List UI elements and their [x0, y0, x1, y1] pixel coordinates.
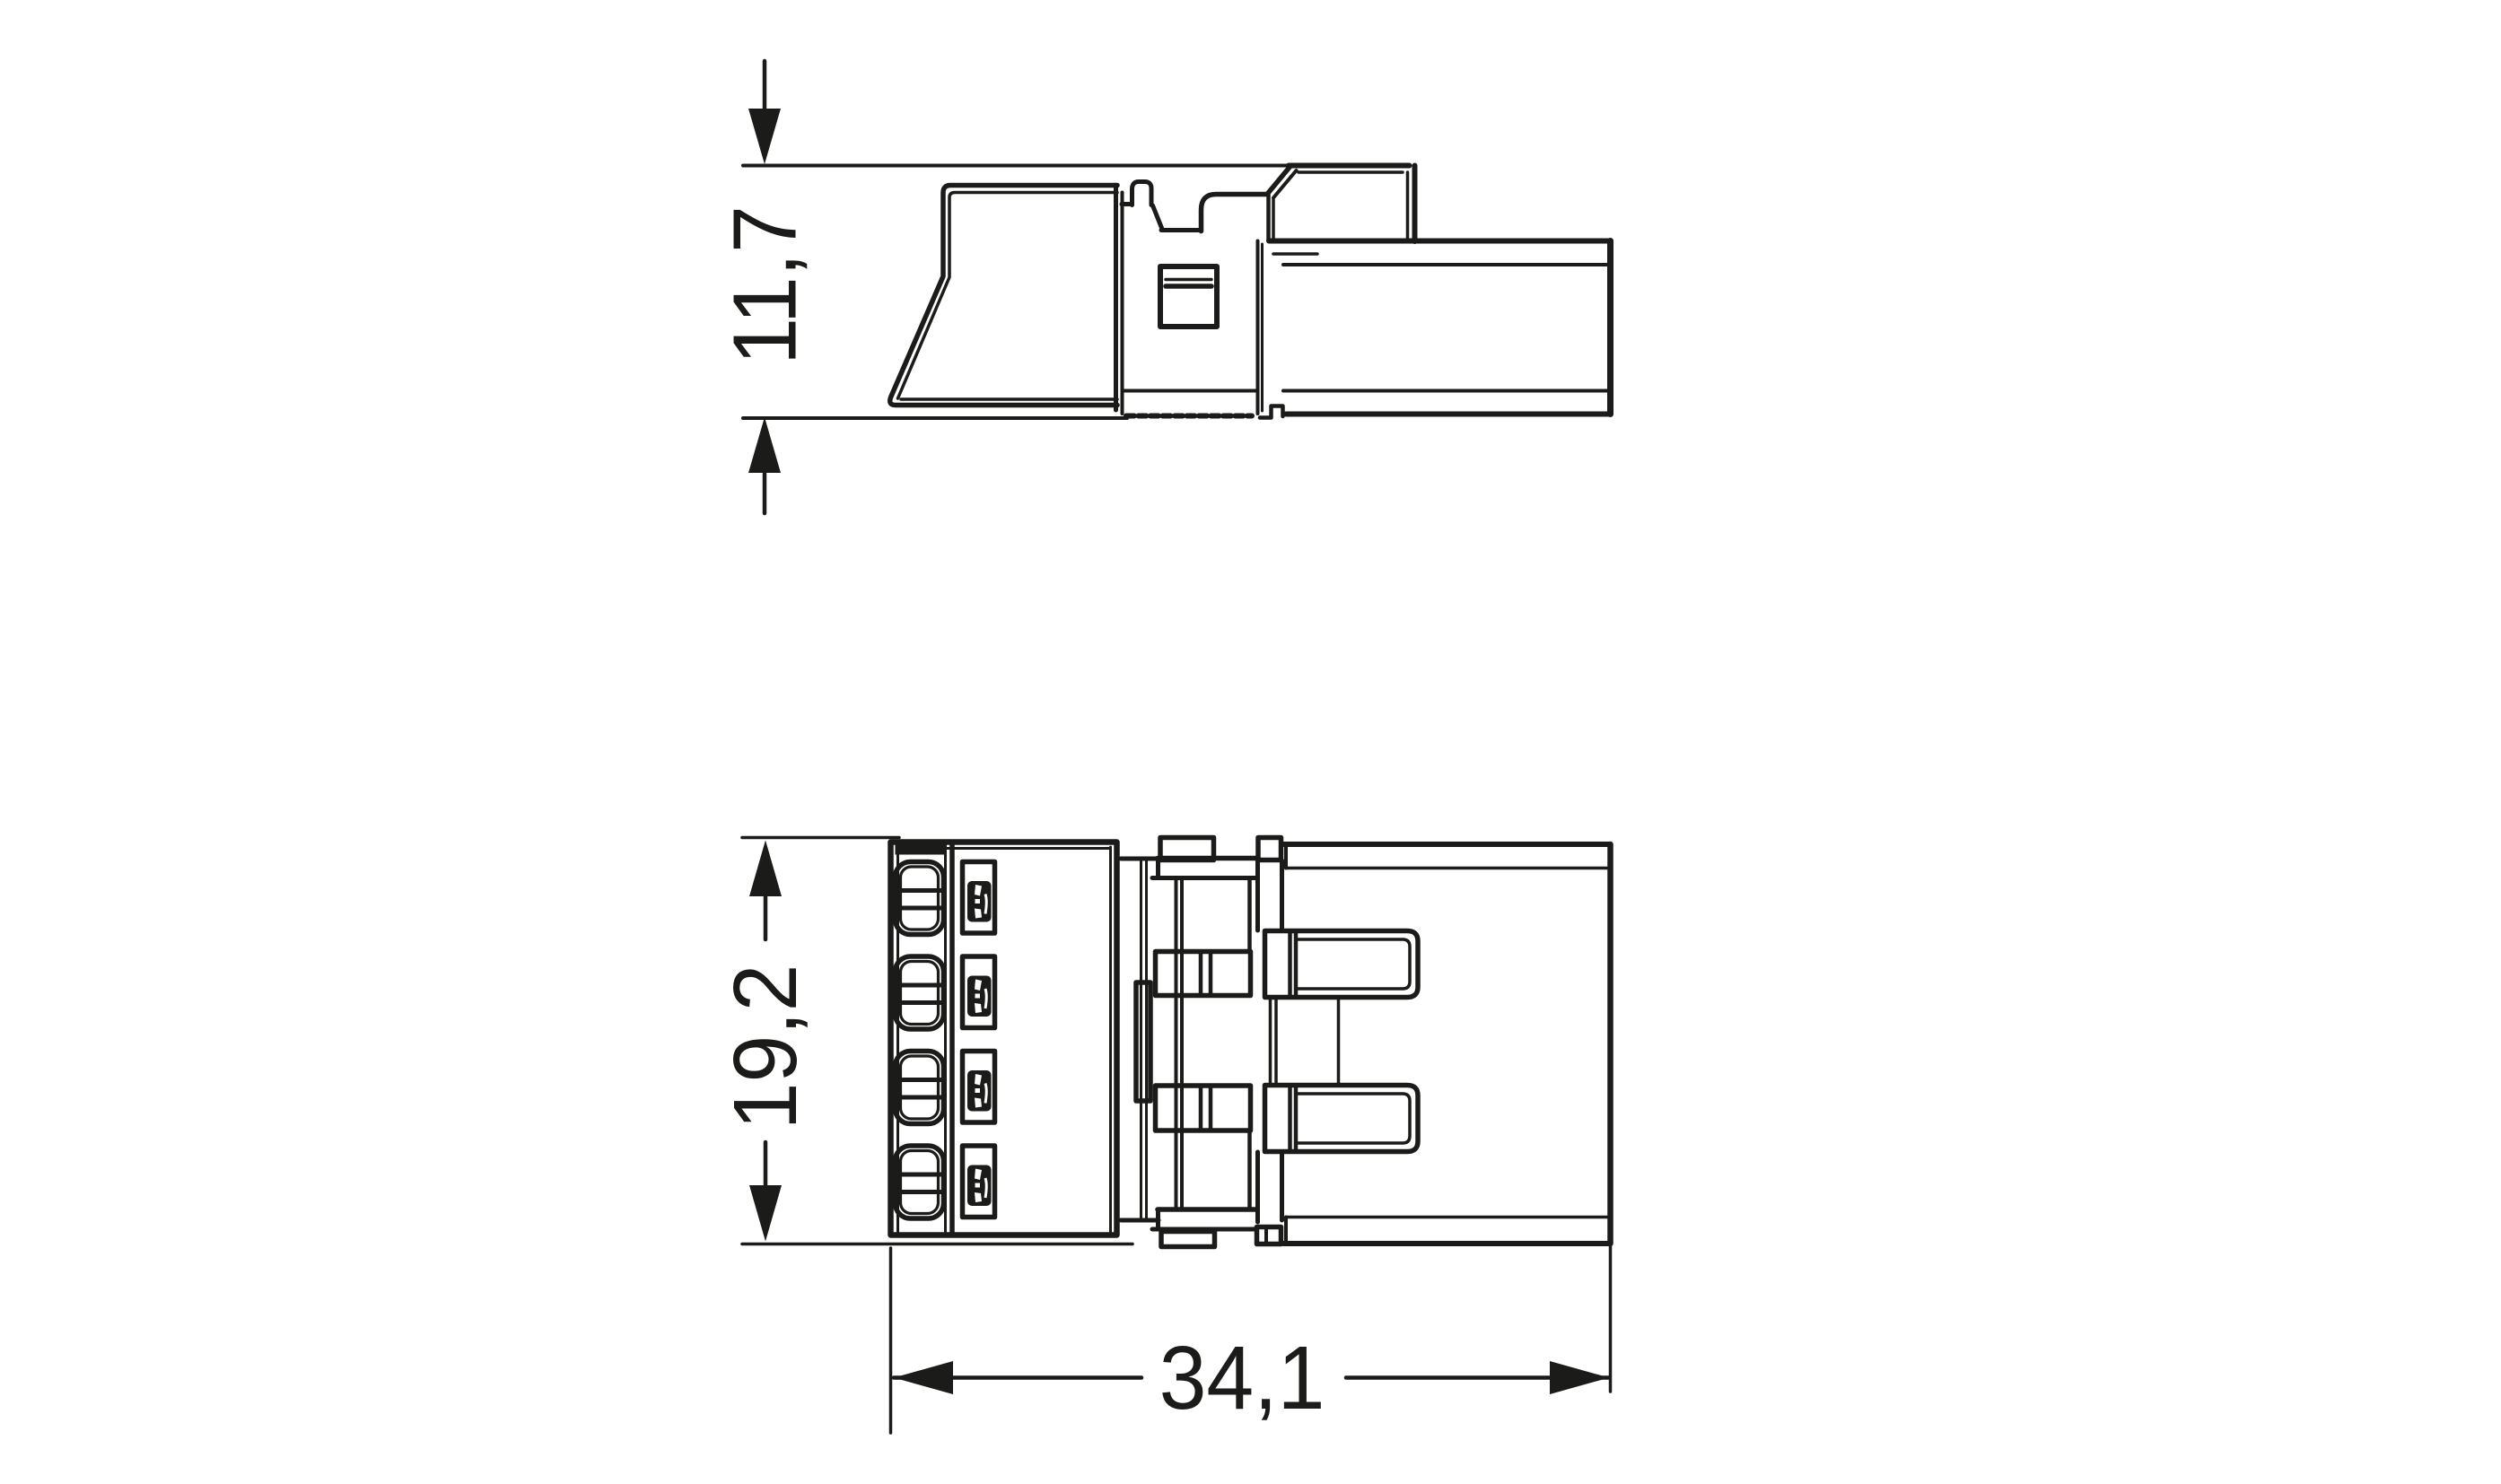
svg-text:19,2: 19,2 — [715, 965, 816, 1130]
svg-text:11,7: 11,7 — [714, 205, 815, 365]
svg-text:34,1: 34,1 — [1159, 1328, 1325, 1428]
